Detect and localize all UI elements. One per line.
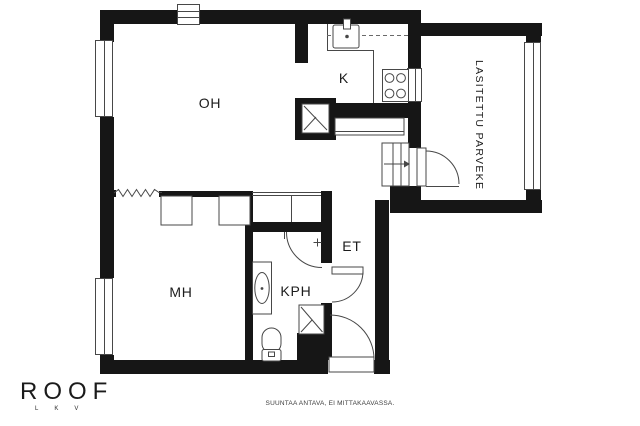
label-hallway: ET bbox=[327, 238, 377, 254]
shower-screen bbox=[285, 232, 323, 268]
stove bbox=[383, 70, 409, 102]
living-closet-sliding-doors bbox=[252, 193, 321, 223]
kitchen-sink bbox=[333, 19, 359, 48]
label-living-room: OH bbox=[185, 95, 235, 111]
hall-cabinet bbox=[382, 143, 410, 186]
logo-text: ROOF bbox=[20, 380, 113, 404]
bedroom-closet-1 bbox=[161, 196, 192, 225]
entrance-door bbox=[329, 315, 374, 372]
label-bathroom: KPH bbox=[271, 283, 321, 299]
toilet bbox=[262, 328, 281, 361]
label-bedroom: MH bbox=[156, 284, 206, 300]
scale-disclaimer: SUUNTAA ANTAVA, EI MITTAKAAVASSA. bbox=[250, 400, 410, 407]
bathroom-shaft bbox=[299, 305, 324, 334]
floor-plan-page: OH K MH KPH ET LASITETTU PARVEKE ROOF LK… bbox=[0, 0, 640, 426]
label-kitchen: K bbox=[319, 70, 369, 86]
kitchen-shaft bbox=[302, 104, 329, 133]
label-balcony: LASITETTU PARVEKE bbox=[463, 48, 485, 202]
balcony-door bbox=[417, 148, 459, 187]
bathroom-door bbox=[332, 267, 363, 302]
logo-subtext: LKV bbox=[20, 406, 113, 412]
bedroom-closet-2 bbox=[219, 196, 250, 225]
roof-lkv-logo: ROOF LKV bbox=[20, 380, 113, 412]
bathroom-sink bbox=[253, 262, 272, 314]
opening-zigzag bbox=[114, 190, 162, 197]
fixtures-layer bbox=[0, 0, 640, 426]
hall-wardrobe bbox=[335, 118, 404, 135]
